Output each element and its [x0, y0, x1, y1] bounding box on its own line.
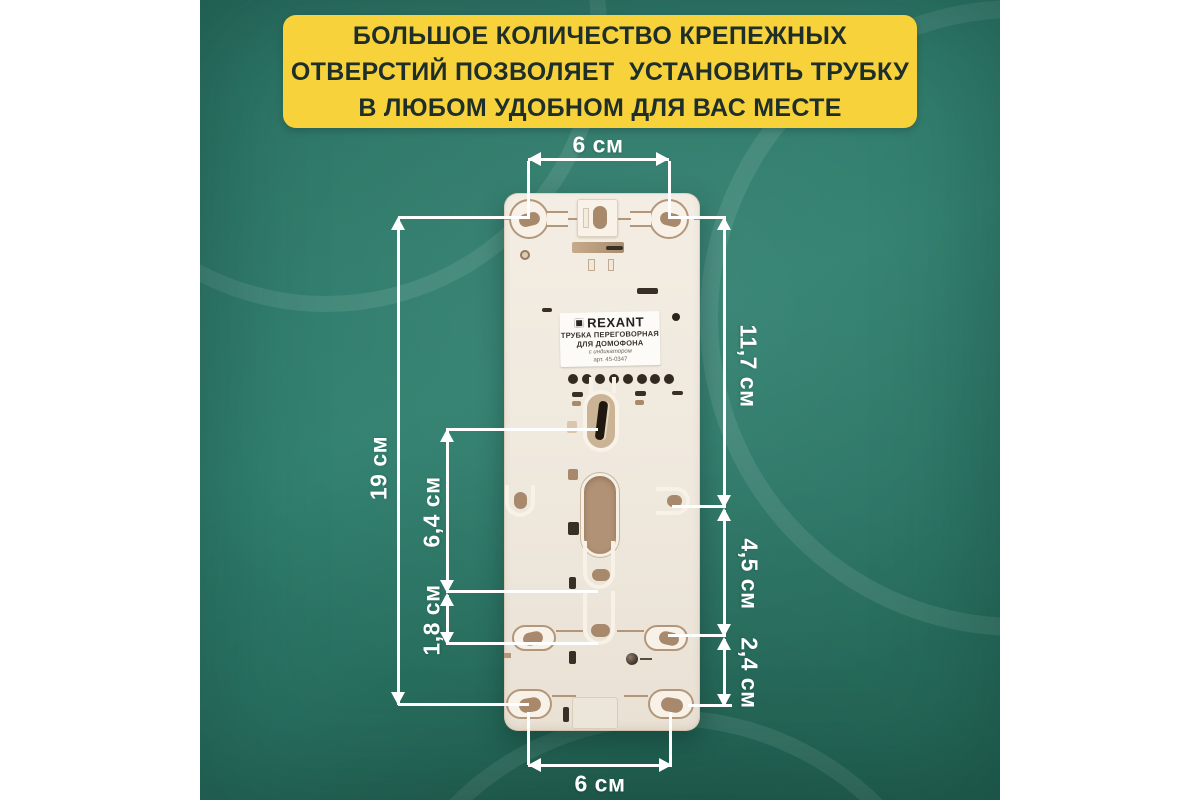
small-dash [542, 308, 552, 312]
indicator-hole [672, 313, 680, 321]
hanging-hook-upper [583, 557, 615, 589]
dim-tick [669, 216, 726, 219]
keyhole-stem [630, 211, 651, 227]
small-square [567, 421, 577, 433]
mounting-keyhole-mid-right [644, 625, 688, 651]
dim-label-right-mid: 4,5 см [736, 538, 763, 609]
brand-name: REXANT [587, 314, 644, 330]
groove-line [504, 653, 511, 658]
groove-line [616, 218, 631, 220]
handset-back-plate: REXANT ТРУБКА ПЕРЕГОВОРНАЯ ДЛЯ ДОМОФОНА … [504, 193, 700, 731]
keyhole-slot [658, 630, 680, 647]
dim-line-right-upper [723, 219, 726, 508]
screw [626, 653, 638, 665]
hook-slot [514, 492, 527, 509]
dim-extension [527, 161, 530, 219]
small-dash [569, 577, 576, 589]
mounting-keyhole-mid-center [583, 605, 615, 645]
dim-label-right-lower: 2,4 см [736, 637, 763, 708]
small-dash [572, 392, 583, 397]
slot-stem [612, 377, 616, 393]
dim-line-slot-to-hook [446, 431, 449, 593]
dim-label-bottom-width: 6 см [575, 771, 626, 798]
arrowhead-up [717, 508, 731, 521]
groove-line [556, 630, 583, 632]
small-square [568, 522, 579, 535]
keyhole-slot [660, 696, 684, 714]
clip-notch [588, 259, 595, 271]
dim-line-top-width [528, 158, 669, 161]
keyhole-slot [591, 624, 610, 637]
dim-label-overall-height: 19 см [366, 436, 393, 500]
arrowhead-right [659, 758, 672, 772]
hanging-slot [595, 401, 609, 441]
dim-tick [398, 703, 529, 706]
small-dash [635, 400, 644, 405]
keyhole-stem [547, 211, 568, 227]
sticker-article: арт. 45-0347 [593, 355, 627, 364]
hook-hole-left [505, 485, 535, 517]
groove-line [617, 630, 644, 632]
product-sticker: REXANT ТРУБКА ПЕРЕГОВОРНАЯ ДЛЯ ДОМОФОНА … [559, 311, 660, 367]
speaker-hole [637, 374, 647, 384]
connector-notch [583, 208, 589, 228]
caption-line-2: ОТВЕРСТИЙ ПОЗВОЛЯЕТ УСТАНОВИТЬ ТРУБКУ [291, 54, 909, 90]
screw-hole [520, 250, 530, 260]
caption-line-1: БОЛЬШОЕ КОЛИЧЕСТВО КРЕПЕЖНЫХ [353, 18, 847, 54]
cable-channel-mark [606, 246, 623, 250]
caption-banner: БОЛЬШОЕ КОЛИЧЕСТВО КРЕПЕЖНЫХ ОТВЕРСТИЙ П… [283, 15, 917, 128]
hook-hole-right [656, 487, 690, 515]
dim-label-right-upper: 11,7 см [735, 324, 762, 407]
clip-notch [608, 259, 614, 271]
dim-tick [446, 428, 598, 431]
hanging-keyhole [583, 390, 619, 452]
connector-hole [593, 206, 607, 229]
product-image: БОЛЬШОЕ КОЛИЧЕСТВО КРЕПЕЖНЫХ ОТВЕРСТИЙ П… [0, 0, 1200, 800]
arrowhead-up [440, 593, 454, 606]
dim-line-bottom-width [528, 764, 672, 767]
groove-line [640, 658, 652, 660]
hook-slot [592, 569, 610, 581]
speaker-hole [595, 374, 605, 384]
dim-tick [688, 704, 732, 707]
speaker-holes [568, 374, 674, 384]
arrowhead-left [528, 758, 541, 772]
brand-row: REXANT [575, 314, 644, 330]
dim-label-slot-to-hook: 6,4 см [419, 476, 446, 547]
groove-line [624, 695, 648, 697]
dim-line-right-mid [723, 510, 726, 637]
small-dash [569, 651, 576, 664]
dim-line-overall-height [397, 219, 400, 705]
dim-extension [668, 161, 671, 219]
dim-label-top-width: 6 см [573, 132, 624, 159]
speaker-hole [650, 374, 660, 384]
small-dash [563, 707, 569, 722]
bottom-recess [572, 697, 618, 729]
slot-stem [589, 377, 593, 393]
speaker-hole [664, 374, 674, 384]
dim-tick [446, 590, 598, 593]
dim-tick [398, 216, 529, 219]
small-square [568, 469, 578, 480]
small-dash [672, 391, 683, 395]
vent-slot [637, 288, 658, 294]
mounting-keyhole-mid-left [512, 625, 556, 651]
top-connector-module [577, 199, 618, 237]
rexant-logo-icon [575, 318, 584, 327]
arrowhead-up [717, 637, 731, 650]
speaker-hole [568, 374, 578, 384]
caption-line-3: В ЛЮБОМ УДОБНОМ ДЛЯ ВАС МЕСТЕ [358, 90, 841, 126]
small-dash [572, 401, 581, 406]
speaker-hole [623, 374, 633, 384]
small-dash [635, 391, 646, 396]
dim-tick [446, 642, 598, 645]
